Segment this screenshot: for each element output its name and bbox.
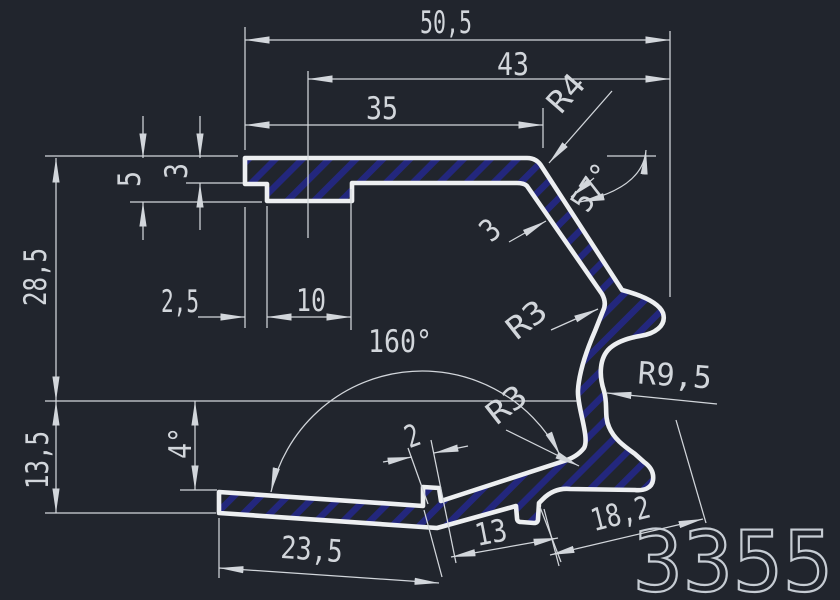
label-wall-angle: 57° bbox=[564, 157, 621, 219]
label-top-length: 35 bbox=[366, 91, 398, 127]
ext-foot-left bbox=[544, 509, 559, 566]
label-root-radius: R3 bbox=[479, 378, 534, 432]
label-tab-spacing: 13 bbox=[472, 512, 510, 553]
label-channel-width: 10 bbox=[296, 283, 326, 319]
cad-viewport: 50,5 43 35 2,5 10 160° 5 3 28,5 13,5 4° … bbox=[0, 0, 840, 600]
leader-wall-thickness bbox=[509, 221, 546, 242]
label-step-depth: 5 bbox=[112, 171, 148, 187]
label-overall-width: 50,5 bbox=[420, 5, 472, 41]
label-tilt-angle: 4° bbox=[163, 427, 199, 459]
ext-foot-right bbox=[676, 420, 706, 523]
dim-flange-left-line bbox=[219, 568, 439, 583]
leader-root-radius bbox=[506, 430, 579, 466]
label-step-offset: 2,5 bbox=[161, 284, 199, 320]
label-flange-left: 23,5 bbox=[280, 530, 344, 570]
label-channel-center: 43 bbox=[497, 47, 529, 83]
label-hook-radius: R3 bbox=[499, 293, 554, 347]
dim-tab-width-tail-right bbox=[434, 446, 468, 453]
label-bend-angle: 160° bbox=[368, 324, 432, 360]
label-lower-height: 13,5 bbox=[20, 431, 56, 489]
label-top-radius: R4 bbox=[540, 67, 593, 121]
label-tab-width: 2 bbox=[400, 417, 425, 456]
cad-canvas: 50,5 43 35 2,5 10 160° 5 3 28,5 13,5 4° … bbox=[0, 0, 840, 600]
ext-tab-left-up bbox=[408, 448, 428, 504]
leader-hook-radius bbox=[551, 309, 598, 330]
label-bend-radius: R9,5 bbox=[637, 355, 713, 396]
dim-tab-width-tail-left bbox=[383, 457, 412, 462]
label-wall-thickness: 3 bbox=[473, 212, 509, 250]
label-top-thickness: 3 bbox=[159, 163, 195, 179]
label-upper-height: 28,5 bbox=[18, 248, 54, 306]
part-number: 3355 bbox=[633, 513, 833, 600]
